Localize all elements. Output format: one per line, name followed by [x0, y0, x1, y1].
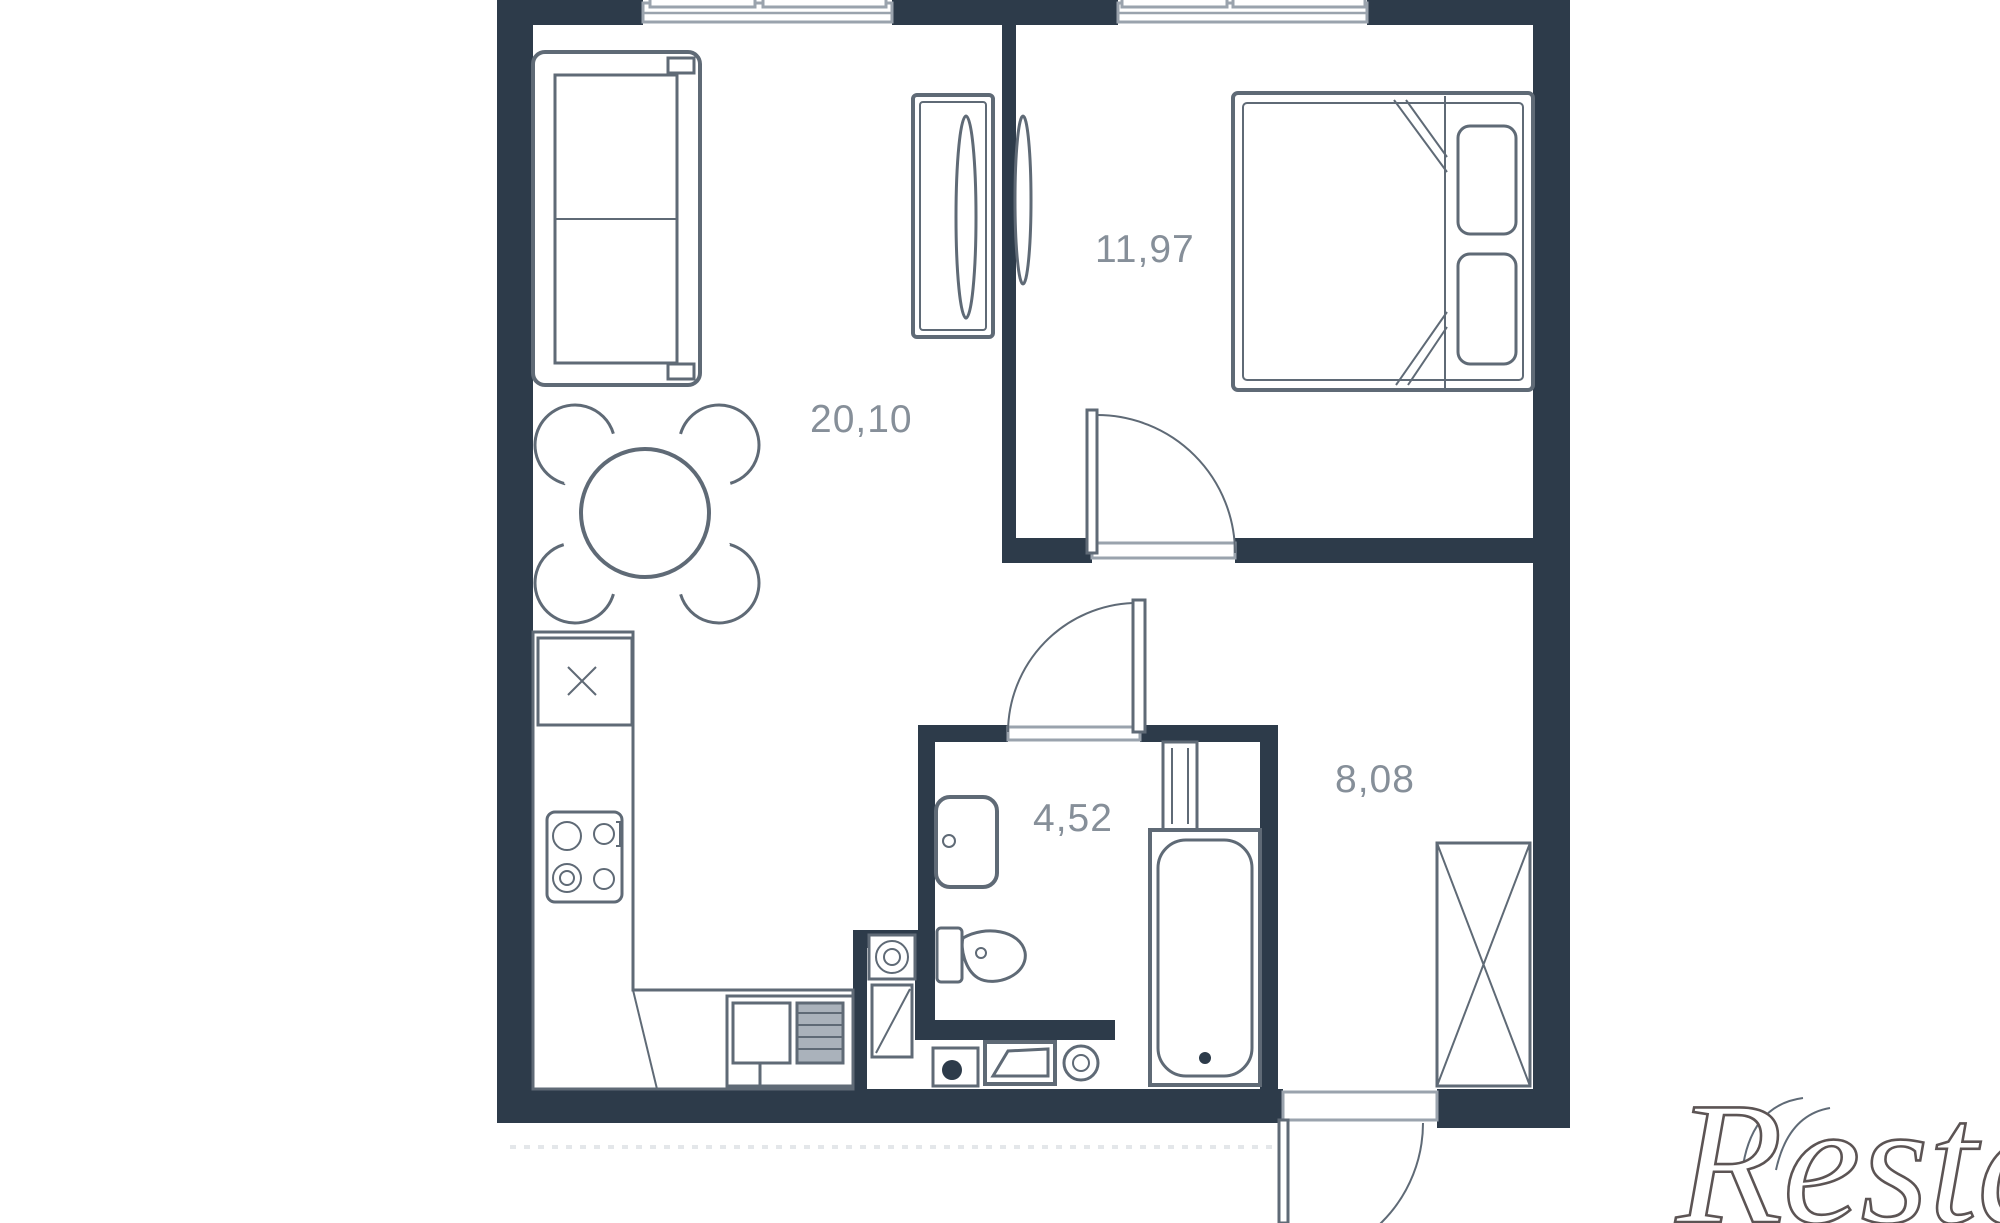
water-heater — [872, 985, 912, 1057]
washing-machine — [869, 935, 915, 979]
door-bedroom — [1087, 410, 1235, 558]
shower-column — [1163, 742, 1197, 830]
laundry-units — [933, 1042, 1098, 1086]
bathtub — [1150, 830, 1260, 1085]
tv-console — [913, 95, 993, 337]
label-hallway-area: 8,08 — [1335, 758, 1415, 801]
sofa — [533, 52, 700, 385]
cooktop — [547, 812, 622, 902]
floor-plan-drawing: 20,10 11,97 4,52 8,08 Restate — [0, 0, 2000, 1223]
dining-table — [581, 449, 709, 577]
bathroom-sink — [936, 797, 997, 887]
watermark-text: Restate — [1675, 1066, 2000, 1223]
window-living — [643, 0, 892, 22]
label-bathroom-area: 4,52 — [1033, 797, 1113, 840]
label-living-area: 20,10 — [810, 398, 913, 441]
label-bedroom-area: 11,97 — [1095, 228, 1195, 271]
toilet — [937, 928, 1025, 982]
watermark: Restate — [1675, 1066, 2000, 1223]
door-entry — [1279, 1092, 1437, 1223]
window-bedroom — [1118, 0, 1367, 22]
floor-plan-canvas: 20,10 11,97 4,52 8,08 Restate — [0, 0, 2000, 1223]
wardrobe-x — [1437, 843, 1530, 1086]
kitchen-sink-drainer — [727, 996, 853, 1089]
door-bathroom — [1008, 600, 1145, 740]
kitchen-cabinet-x — [538, 638, 632, 725]
bedroom-wall-tv — [1015, 116, 1031, 284]
